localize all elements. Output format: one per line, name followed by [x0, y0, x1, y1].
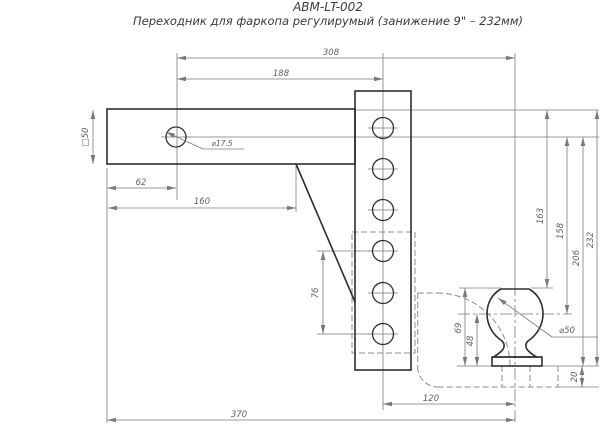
dim-48: 48 [466, 335, 476, 346]
hitch-adapter-drawing: 308 188 □50 ⌀17.5 62 160 370 120 76 163 … [0, 0, 600, 424]
technical-drawing-page: ABM-LT-002 Переходник для фаркопа регули… [0, 0, 600, 424]
arm-outer-corner [418, 367, 438, 387]
dim-62: 62 [136, 178, 147, 188]
dim-158: 158 [556, 222, 566, 239]
dim-ball-dia: ⌀50 [559, 326, 575, 336]
dim-206: 206 [572, 249, 582, 266]
arm-inner-curve [437, 293, 510, 366]
dim-163: 163 [536, 208, 546, 224]
bracket-alt-position-outline [352, 232, 415, 353]
dim-120: 120 [423, 394, 439, 404]
dim-232: 232 [586, 232, 596, 248]
dim-188: 188 [273, 69, 290, 79]
dim-20: 20 [570, 372, 580, 383]
ball-base-plate [492, 357, 542, 366]
dimension-labels: 308 188 □50 ⌀17.5 62 160 370 120 76 163 … [81, 48, 596, 420]
dim-76: 76 [311, 287, 321, 298]
gusset-line [296, 164, 355, 302]
centerlines [458, 284, 572, 424]
dim-370: 370 [231, 410, 247, 420]
dim-69: 69 [454, 323, 464, 334]
dim-308: 308 [323, 48, 340, 58]
dim-hole-dia: ⌀17.5 [211, 139, 232, 148]
dim-square-50: □50 [81, 128, 91, 147]
shank-outline [107, 109, 355, 164]
dim-160: 160 [194, 197, 210, 207]
part-outlines [107, 91, 543, 370]
